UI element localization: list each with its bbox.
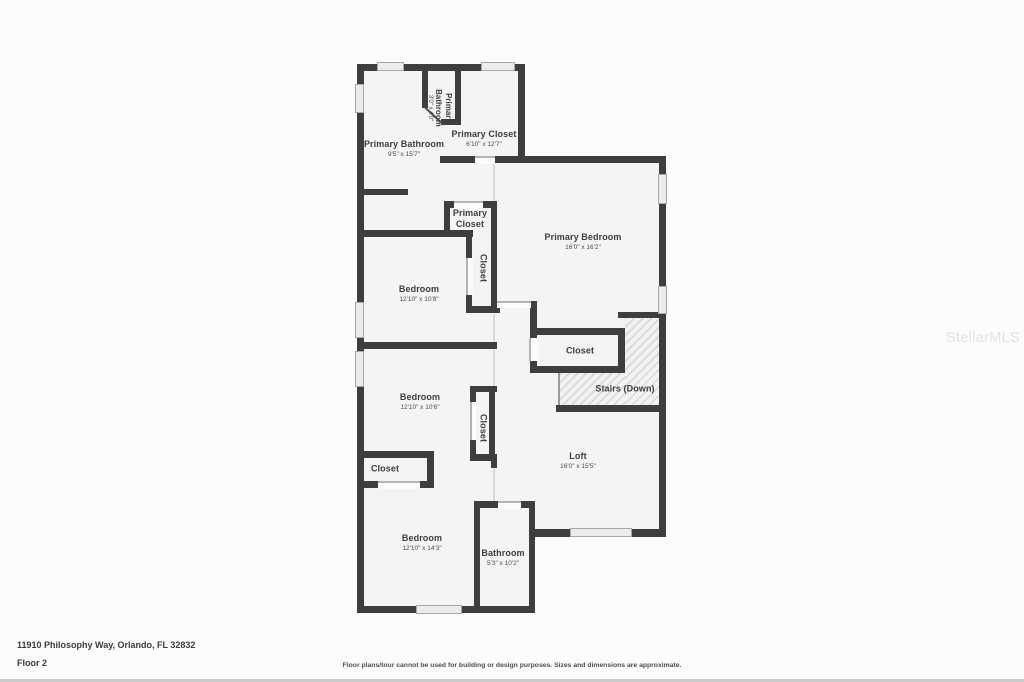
door-opening xyxy=(475,156,495,164)
wall xyxy=(357,342,497,349)
wall xyxy=(474,501,480,613)
stellar-mls-watermark: StellarMLS xyxy=(946,330,1020,346)
wall xyxy=(357,189,408,195)
room-name: Loft xyxy=(560,451,596,462)
wall xyxy=(357,64,364,613)
wall xyxy=(470,386,476,403)
room-name: Primary Closet xyxy=(447,208,493,231)
wall xyxy=(659,156,666,537)
room-dimensions: 12'10" x 14'3" xyxy=(402,545,442,553)
window xyxy=(570,528,632,537)
room-name: Closet xyxy=(566,345,594,356)
wall xyxy=(618,328,625,373)
wall xyxy=(466,236,472,259)
room-name: Primary Bathroom xyxy=(364,139,444,150)
wall xyxy=(440,156,475,163)
window xyxy=(355,302,364,338)
room-name: Bedroom xyxy=(399,284,439,295)
wall xyxy=(357,451,434,458)
door-opening xyxy=(497,301,531,308)
room-label-primary-closet-upper: Primary Closet6'10" x 12'7" xyxy=(452,129,517,149)
stairs-edge-line xyxy=(558,373,560,406)
door-opening xyxy=(529,338,538,361)
wall xyxy=(466,306,500,313)
room-label-loft: Loft16'0" x 15'5" xyxy=(560,451,596,471)
room-dimensions: 9'5" x 15'7" xyxy=(364,151,444,159)
room-dimensions: 12'10" x 10'6" xyxy=(400,404,440,412)
wall xyxy=(455,64,461,124)
room-name: Primary Bedroom xyxy=(544,232,621,243)
window xyxy=(355,351,364,387)
floor-plan-page: Primary Bathroom3'0" x 4'0"Primary Bathr… xyxy=(0,0,1024,682)
wall xyxy=(357,230,473,237)
wall xyxy=(556,405,666,412)
room-name: Closet xyxy=(477,414,488,442)
wall xyxy=(474,501,499,508)
room-label-primary-closet-hall: Primary Closet xyxy=(447,208,493,231)
room-name: Primary Closet xyxy=(452,129,517,140)
doorway-opening xyxy=(493,469,495,501)
room-label-primary-bathroom: Primary Bathroom9'5" x 15'7" xyxy=(364,139,444,159)
wall xyxy=(419,481,434,488)
door-opening xyxy=(470,402,476,440)
wall xyxy=(529,501,535,613)
room-label-bedroom-3: Bedroom12'10" x 14'3" xyxy=(402,533,442,553)
room-label-closet-stairs: Closet xyxy=(566,345,594,356)
room-label-closet-bedroom-1: Closet xyxy=(477,254,488,282)
room-dimensions: 16'0" x 16'2" xyxy=(544,244,621,252)
room-label-bedroom-1: Bedroom12'10" x 10'8" xyxy=(399,284,439,304)
room-dimensions: 5'3" x 10'2" xyxy=(481,560,524,568)
wall xyxy=(357,481,379,488)
wall xyxy=(495,156,666,163)
room-label-bedroom-2: Bedroom12'10" x 10'6" xyxy=(400,392,440,412)
wall xyxy=(491,455,497,468)
room-dimensions: 6'10" x 12'7" xyxy=(452,141,517,149)
window xyxy=(416,605,462,614)
wall xyxy=(530,328,625,335)
wall xyxy=(489,386,495,461)
room-label-primary-bedroom: Primary Bedroom16'0" x 16'2" xyxy=(544,232,621,252)
wall xyxy=(530,366,625,373)
room-label-closet-bedroom-2: Closet xyxy=(477,414,488,442)
window xyxy=(481,62,515,71)
wall xyxy=(518,64,525,163)
doorway-opening xyxy=(493,314,495,342)
wall xyxy=(530,301,537,373)
room-name: Bathroom xyxy=(481,548,524,559)
room-label-primary-bathroom-wc: Primary Bathroom3'0" x 4'0" xyxy=(425,85,453,131)
doorway-opening xyxy=(493,164,495,201)
window xyxy=(355,84,364,113)
disclaimer-text: Floor plans/tour cannot be used for buil… xyxy=(0,662,1024,669)
room-name: Bedroom xyxy=(400,392,440,403)
room-name: Closet xyxy=(477,254,488,282)
room-dimensions: 16'0" x 15'5" xyxy=(560,463,596,471)
room-name: Closet xyxy=(371,463,399,474)
room-label-bathroom: Bathroom5'3" x 10'2" xyxy=(481,548,524,568)
room-label-stairs-down: Stairs (Down) xyxy=(595,383,654,394)
room-name: Stairs (Down) xyxy=(595,383,654,394)
room-label-closet-bedroom-3: Closet xyxy=(371,463,399,474)
doorway-opening xyxy=(493,350,495,386)
window xyxy=(377,62,404,71)
room-dimensions: 12'10" x 10'8" xyxy=(399,296,439,304)
door-opening xyxy=(378,481,420,489)
property-address: 11910 Philosophy Way, Orlando, FL 32832 xyxy=(17,640,195,650)
door-opening xyxy=(466,258,473,295)
window xyxy=(658,286,667,314)
door-opening xyxy=(498,501,521,509)
room-name: Bedroom xyxy=(402,533,442,544)
room-name: Primary Bathroom xyxy=(434,85,453,131)
window xyxy=(658,174,667,204)
room-dimensions: 3'0" x 4'0" xyxy=(425,85,433,131)
